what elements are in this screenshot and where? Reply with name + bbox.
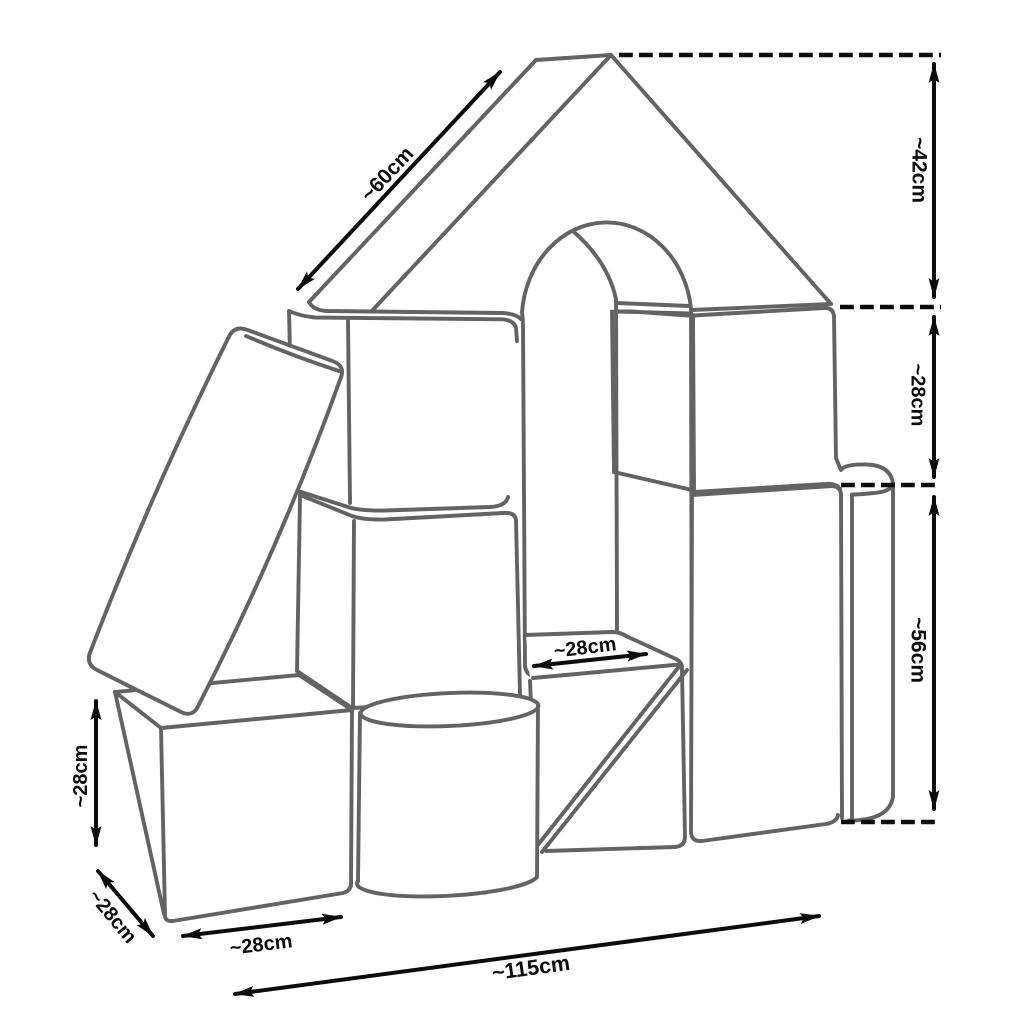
svg-text:~28cm: ~28cm (907, 364, 929, 427)
svg-text:~42cm: ~42cm (908, 137, 931, 203)
svg-text:~115cm: ~115cm (491, 951, 572, 985)
svg-text:~28cm: ~28cm (70, 745, 92, 808)
svg-text:~56cm: ~56cm (907, 617, 930, 683)
svg-text:~28cm: ~28cm (84, 886, 141, 948)
svg-text:~28cm: ~28cm (229, 930, 294, 959)
